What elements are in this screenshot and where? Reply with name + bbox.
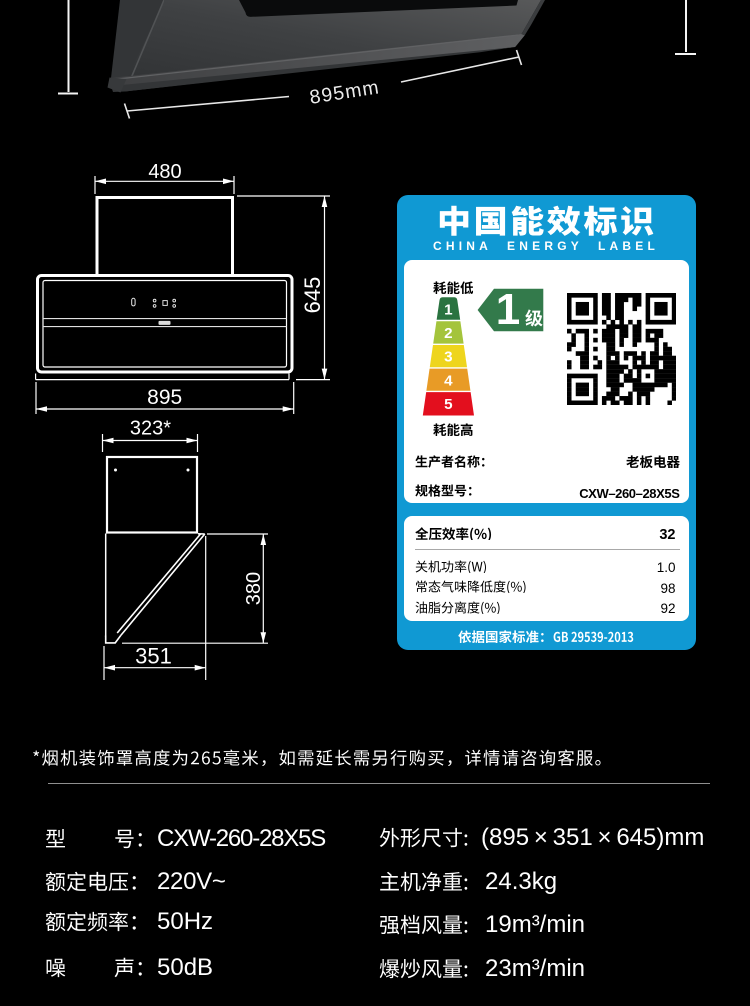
svg-text:895mm: 895mm	[308, 76, 381, 108]
svg-text:895: 895	[147, 386, 182, 409]
svg-text:3: 3	[444, 348, 452, 365]
svg-text:323*: 323*	[130, 418, 171, 439]
svg-text:2: 2	[444, 325, 452, 342]
svg-text:1: 1	[496, 285, 520, 334]
svg-text:1: 1	[444, 301, 453, 318]
svg-text:5: 5	[444, 396, 453, 413]
svg-text:4: 4	[444, 372, 453, 389]
svg-text:645: 645	[300, 277, 325, 314]
svg-text:351: 351	[135, 644, 172, 669]
svg-text:480: 480	[148, 161, 181, 183]
